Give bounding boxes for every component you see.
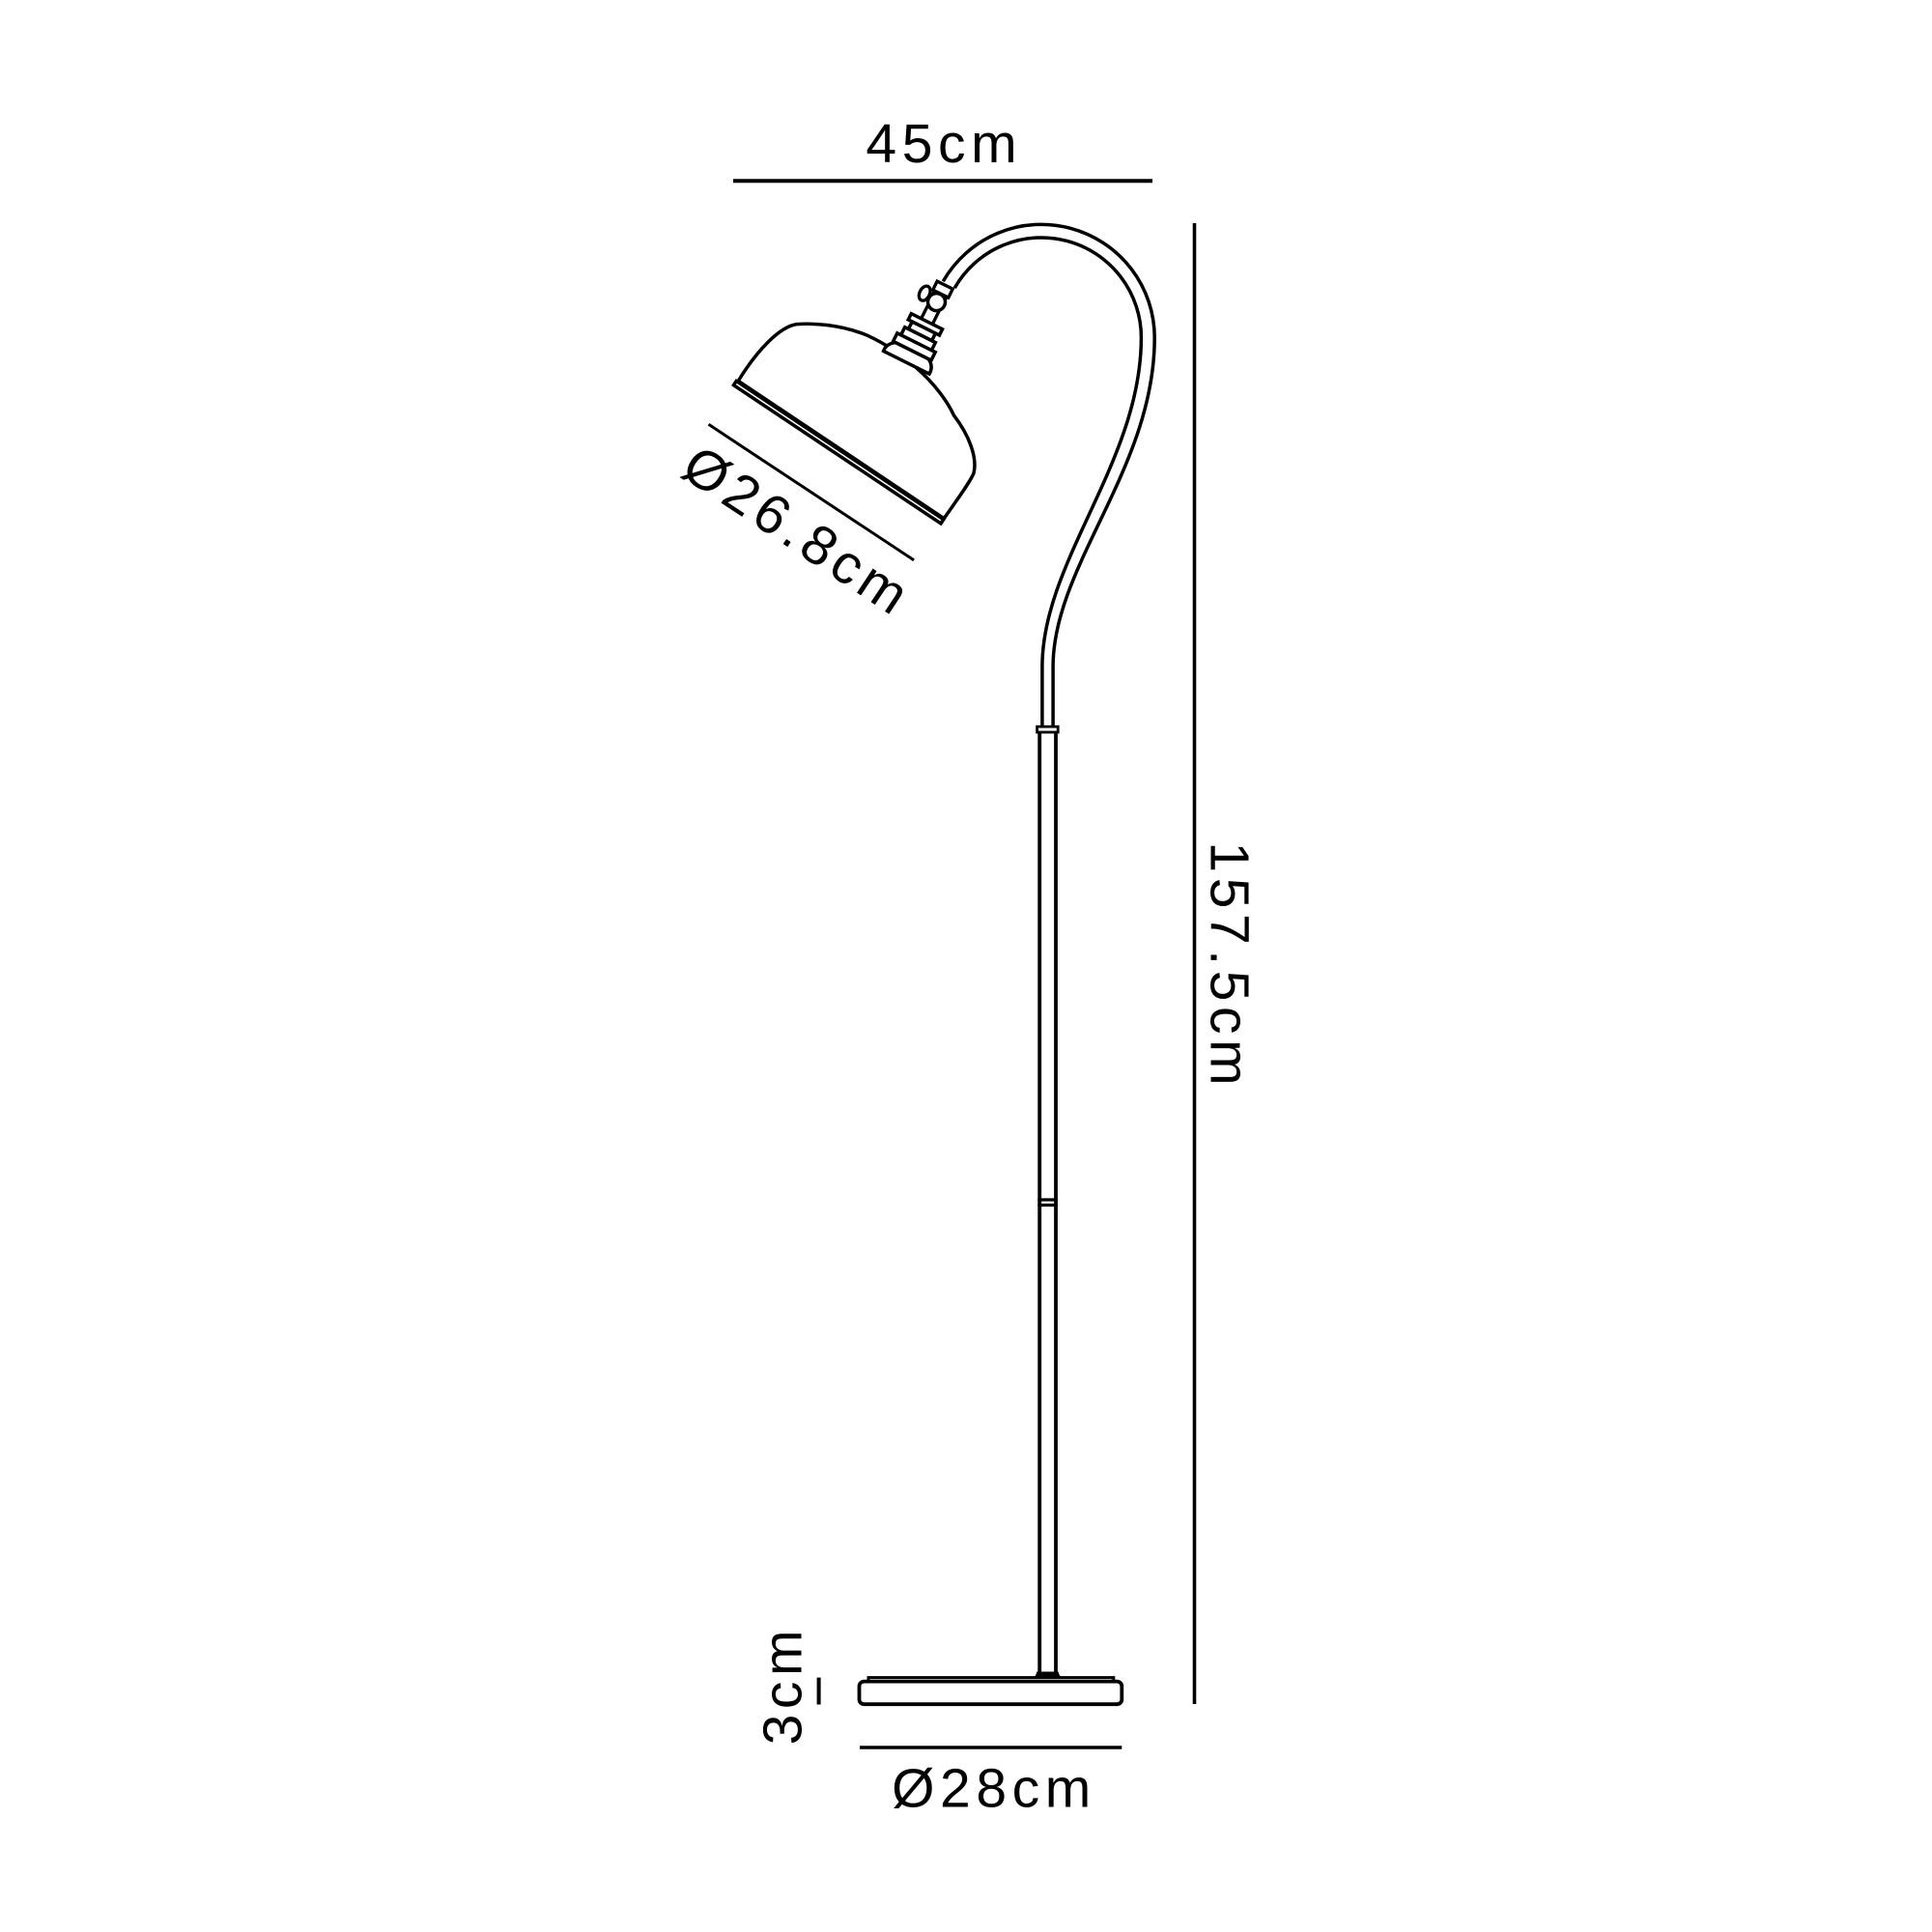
svg-text:3cm: 3cm [753, 1625, 814, 1745]
svg-text:Ø28cm: Ø28cm [892, 1758, 1096, 1820]
svg-text:45cm: 45cm [866, 113, 1022, 175]
svg-text:157.5cm: 157.5cm [1199, 841, 1261, 1091]
